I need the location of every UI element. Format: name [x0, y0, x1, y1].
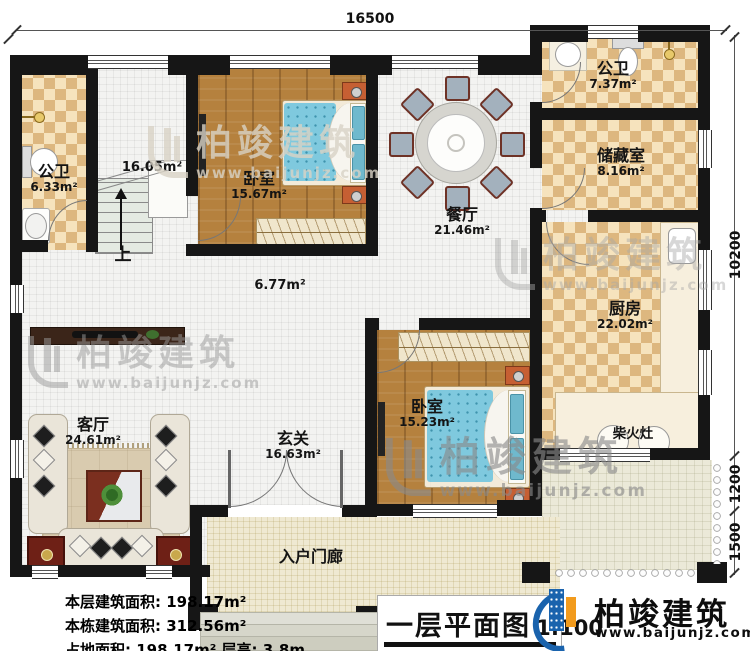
- table-plant: [100, 483, 124, 507]
- dining-table-center: [447, 134, 465, 152]
- wall-storage-kitchen-b: [588, 210, 710, 222]
- window: [698, 130, 712, 168]
- dimension-right-low-label: 1500: [728, 512, 744, 572]
- room-label-living: 客厅 24.61m²: [48, 416, 138, 447]
- room-label-porch: 入户门廊: [256, 548, 366, 566]
- wall-bedroom1-right: [366, 55, 378, 256]
- room-label-storage: 储藏室 8.16m²: [576, 147, 666, 178]
- entry-door-leaf: [340, 450, 343, 508]
- room-label-bedroom2: 卧室 15.23m²: [382, 398, 472, 429]
- wall-bedroom2-top-b: [419, 318, 540, 330]
- dining-chair: [389, 132, 414, 157]
- wall-bath1-bottom: [10, 240, 48, 252]
- nightstand-knob: [351, 191, 362, 202]
- building-stats: 本层建筑面积: 198.17m² 本栋建筑面积: 312.56m² 占地面积: …: [65, 590, 305, 651]
- nightstand-knob: [513, 371, 524, 382]
- window: [698, 350, 712, 395]
- nightstand: [505, 366, 530, 385]
- wall-east-seg: [530, 208, 542, 318]
- bed-pillow: [510, 438, 524, 480]
- window: [230, 55, 330, 69]
- dining-chair: [445, 76, 470, 101]
- patio-dot-column: [711, 462, 723, 564]
- wall-bedroom2-top-a: [365, 318, 379, 330]
- dimension-line-top: [15, 30, 727, 31]
- patio-column: [697, 562, 727, 583]
- patio-floor: [542, 460, 712, 570]
- stairs-area-label: 16.05m²: [112, 160, 192, 175]
- nightstand-knob: [351, 87, 362, 98]
- room-label-bathroom2: 公卫 7.37m²: [578, 60, 648, 91]
- wall-nub: [535, 25, 588, 42]
- brand-logo-icon: [534, 583, 588, 647]
- bed-pillow: [510, 394, 524, 434]
- plan-title: 一层平面图: [386, 611, 531, 642]
- window: [560, 448, 650, 462]
- wardrobe: [256, 218, 366, 246]
- stair-arrow-head: [115, 188, 127, 199]
- stove-label: 柴火灶: [598, 422, 668, 442]
- nightstand: [342, 82, 368, 100]
- wall-storage-kitchen-a: [530, 210, 546, 222]
- wall-bath2-storage: [530, 108, 710, 120]
- room-label-entry: 玄关 16.63m²: [248, 430, 338, 461]
- dimension-top-label: 16500: [330, 11, 410, 27]
- wall-bedroom1-bottom: [186, 244, 378, 256]
- wall-bedroom1-left-a: [186, 55, 198, 196]
- window: [698, 250, 712, 310]
- kitchen-sink: [668, 228, 696, 264]
- brand-url: www.baijunjz.com: [595, 625, 750, 641]
- dimension-tick: [3, 34, 14, 45]
- window: [10, 440, 24, 478]
- wall-bedroom2-left: [365, 318, 377, 516]
- room-label-bathroom1: 公卫 6.33m²: [18, 163, 90, 194]
- dimension-right-mid-label: 1200: [728, 454, 744, 514]
- wall-nub: [168, 55, 230, 75]
- sink-basin: [25, 213, 47, 239]
- dimension-right-label: 10200: [728, 225, 744, 285]
- window: [588, 25, 638, 39]
- table-inlay: [170, 549, 182, 561]
- shower-head-icon: [664, 49, 675, 60]
- entry-door-leaf: [228, 450, 231, 508]
- room-label-bedroom1: 卧室 15.67m²: [214, 170, 304, 201]
- window: [392, 55, 478, 69]
- window: [10, 285, 24, 313]
- wall-left: [10, 55, 22, 577]
- porch-column: [497, 500, 537, 515]
- floor-plan-page: 柴火灶 16.05m² 上: [0, 0, 750, 651]
- wall-bath1-right: [86, 55, 98, 252]
- hall-area-label: 6.77m²: [240, 278, 320, 293]
- window: [413, 504, 497, 518]
- stats-line-floor-area: 本层建筑面积: 198.17m²: [65, 590, 305, 614]
- tv-panel: [199, 114, 206, 176]
- wall-entry-left: [190, 505, 228, 517]
- nightstand: [342, 186, 368, 204]
- window: [146, 565, 172, 579]
- wall-nub: [330, 55, 392, 75]
- logo-tower-blue: [549, 589, 564, 631]
- patio-dot-row: [553, 567, 695, 579]
- tv-screen: [72, 331, 138, 338]
- dining-chair: [500, 132, 525, 157]
- shower-head-icon: [34, 112, 45, 123]
- window: [88, 55, 168, 69]
- room-label-dining: 餐厅 21.46m²: [412, 206, 512, 237]
- plant-decor: [146, 330, 159, 339]
- stairs-up-label: 上: [110, 240, 136, 265]
- window: [32, 565, 58, 579]
- logo-tower-orange: [566, 597, 576, 627]
- wall-east-seg: [530, 55, 542, 64]
- bed-pillow: [352, 144, 365, 180]
- bed-pillow: [352, 106, 365, 140]
- room-label-kitchen: 厨房 22.02m²: [585, 300, 665, 331]
- patio-column: [522, 562, 550, 583]
- brand-logo: 柏竣建筑 www.baijunjz.com: [534, 583, 746, 647]
- table-inlay: [41, 549, 53, 561]
- stats-line-total-area: 本栋建筑面积: 312.56m²: [65, 614, 305, 638]
- stats-line-footprint: 占地面积: 198.17m² 层高: 3.8m: [65, 638, 305, 651]
- wall-east-seg: [530, 318, 542, 516]
- title-underline: [384, 642, 556, 647]
